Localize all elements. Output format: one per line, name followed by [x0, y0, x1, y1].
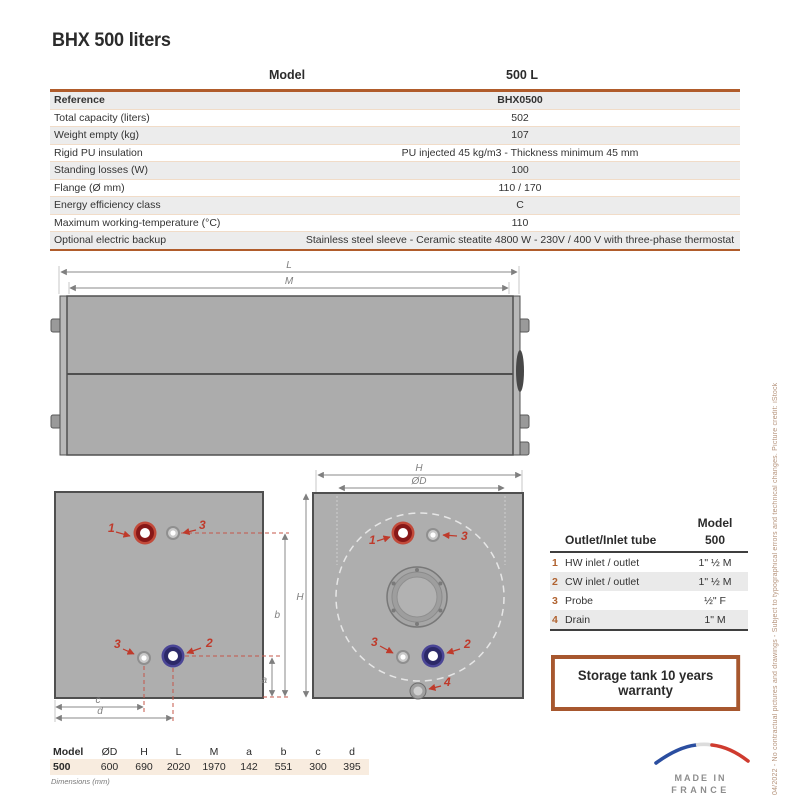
outlet-table-header: Outlet/Inlet tube 500 [550, 530, 748, 553]
row-value: 100 [300, 164, 740, 176]
spec-table: Model 500 L Reference BHX0500 Total capa… [50, 68, 740, 251]
spec-col-model: Model [269, 68, 305, 82]
spec-table-header: Model 500 L [50, 68, 740, 89]
row-label: Probe [565, 595, 682, 607]
dimensions-table: Model ØD H L M a b c d 500 600 690 2020 … [50, 744, 369, 786]
dim-value: 2020 [161, 761, 196, 773]
dim-header: ØD [92, 746, 127, 758]
dimensions-data-row: 500 600 690 2020 1970 142 551 300 395 [50, 759, 369, 775]
port-label-3: 3 [461, 529, 468, 543]
table-row: Energy efficiency class C [50, 197, 740, 215]
dim-value: 142 [232, 761, 266, 773]
port-label-2: 2 [463, 637, 471, 651]
tank-body [67, 296, 513, 455]
dim-value: 395 [335, 761, 369, 773]
dim-header: H [127, 746, 161, 758]
row-label: Total capacity (liters) [50, 112, 300, 124]
port-3-probe-bottom [137, 651, 151, 665]
port-2-cw-inlet [162, 645, 185, 668]
table-row: Weight empty (kg) 107 [50, 127, 740, 145]
dim-label-L: L [286, 260, 292, 271]
dim-header: Model [50, 746, 92, 758]
table-row: 3 Probe ½" F [550, 591, 748, 610]
dim-label-H-left: H [296, 592, 304, 603]
row-label: Optional electric backup [50, 234, 300, 246]
row-label: Standing losses (W) [50, 164, 300, 176]
legal-side-note: 04/2022 - No contractual pictures and dr… [772, 300, 786, 795]
outlet-col-model: Model [682, 516, 748, 530]
row-value: 110 / 170 [300, 182, 740, 194]
port-3-probe-bottom [396, 650, 410, 664]
row-label: CW inlet / outlet [565, 576, 682, 588]
tank-front-view-drawing: H ØD H [295, 450, 540, 705]
port-2-cw-inlet [422, 645, 445, 668]
outlet-table-body: 1 HW inlet / outlet 1" ½ M 2 CW inlet / … [550, 553, 748, 631]
row-label: Maximum working-temperature (°C) [50, 217, 300, 229]
datasheet-page: BHX 500 liters Model 500 L Reference BHX… [0, 0, 800, 805]
outlet-inlet-table: Model Outlet/Inlet tube 500 1 HW inlet /… [550, 516, 748, 631]
dim-value: 551 [266, 761, 301, 773]
row-value: 1" ½ M [682, 576, 748, 588]
row-label: Flange (Ø mm) [50, 182, 300, 194]
dim-header: b [266, 746, 301, 758]
row-label: Energy efficiency class [50, 199, 300, 211]
dim-value: 600 [92, 761, 127, 773]
dim-header: L [161, 746, 196, 758]
table-row: Standing losses (W) 100 [50, 162, 740, 180]
warranty-badge: Storage tank 10 years warranty [551, 655, 740, 711]
row-value: ½" F [682, 595, 748, 607]
row-label: Rigid PU insulation [50, 147, 300, 159]
port-label-1: 1 [369, 533, 376, 547]
flange [387, 567, 447, 627]
france-text: FRANCE [648, 785, 753, 795]
row-number: 3 [550, 595, 565, 607]
row-value: 107 [300, 129, 740, 141]
row-label: Weight empty (kg) [50, 129, 300, 141]
table-row: 2 CW inlet / outlet 1" ½ M [550, 572, 748, 591]
port-3-probe-top [426, 528, 440, 542]
row-label: Reference [50, 94, 300, 106]
port-4-drain [410, 683, 426, 699]
outlet-table-title: Outlet/Inlet tube [565, 533, 682, 547]
row-value: BHX0500 [300, 94, 740, 106]
table-row: 1 HW inlet / outlet 1" ½ M [550, 553, 748, 572]
row-value: 1" M [682, 614, 748, 626]
row-value: PU injected 45 kg/m3 - Thickness minimum… [300, 147, 740, 159]
row-label: HW inlet / outlet [565, 557, 682, 569]
dim-value: 500 [50, 761, 92, 773]
dim-label-a: a [261, 675, 267, 686]
row-number: 4 [550, 614, 565, 626]
port-3-probe-top [166, 526, 180, 540]
port-label-4: 4 [443, 675, 451, 689]
dim-value: 1970 [196, 761, 232, 773]
tank-end-view-drawing: 1 3 3 2 b a c d [40, 485, 310, 737]
tank-side-view-drawing: L M [40, 258, 540, 463]
row-value: 110 [300, 217, 740, 229]
dim-value: 690 [127, 761, 161, 773]
port-label-1: 1 [108, 521, 115, 535]
table-row: Total capacity (liters) 502 [50, 110, 740, 128]
table-row: Flange (Ø mm) 110 / 170 [50, 180, 740, 198]
dim-label-H-top: H [415, 463, 423, 474]
page-title: BHX 500 liters [52, 30, 171, 52]
dimensions-header-row: Model ØD H L M a b c d [50, 744, 369, 759]
dim-header: c [301, 746, 335, 758]
port-1-hw-inlet [134, 522, 157, 545]
port-label-2: 2 [205, 636, 213, 650]
dim-header: d [335, 746, 369, 758]
table-row: Maximum working-temperature (°C) 110 [50, 215, 740, 233]
dim-label-OD: ØD [411, 476, 427, 487]
row-number: 2 [550, 576, 565, 588]
made-in-france-logo: MADE IN FRANCE [648, 741, 753, 795]
table-row: Optional electric backup Stainless steel… [50, 232, 740, 249]
port-1-hw-inlet [392, 522, 415, 545]
row-value: C [300, 199, 740, 211]
table-row: Reference BHX0500 [50, 92, 740, 110]
dim-header: a [232, 746, 266, 758]
row-value: Stainless steel sleeve - Ceramic steatit… [300, 234, 740, 246]
row-value: 1" ½ M [682, 557, 748, 569]
tank-end-cap-left [60, 296, 67, 455]
end-panel [55, 492, 263, 698]
table-row: 4 Drain 1" M [550, 610, 748, 629]
spec-col-500l: 500 L [506, 68, 538, 82]
dim-label-c: c [96, 695, 101, 706]
row-number: 1 [550, 557, 565, 569]
dimensions-note: Dimensions (mm) [50, 775, 369, 786]
tank-right-port-shadow [516, 350, 524, 392]
dim-header: M [196, 746, 232, 758]
dim-label-b: b [274, 610, 280, 621]
port-label-3: 3 [199, 518, 206, 532]
dim-label-M: M [285, 276, 294, 287]
dim-value: 300 [301, 761, 335, 773]
dim-label-d: d [97, 706, 103, 717]
port-label-3b: 3 [371, 635, 378, 649]
table-row: Rigid PU insulation PU injected 45 kg/m3… [50, 145, 740, 163]
outlet-col-500: 500 [682, 533, 748, 547]
french-flag-swoosh-icon [648, 741, 753, 767]
port-label-3b: 3 [114, 637, 121, 651]
row-label: Drain [565, 614, 682, 626]
row-value: 502 [300, 112, 740, 124]
spec-table-body: Reference BHX0500 Total capacity (liters… [50, 89, 740, 251]
made-in-text: MADE IN [648, 773, 753, 783]
